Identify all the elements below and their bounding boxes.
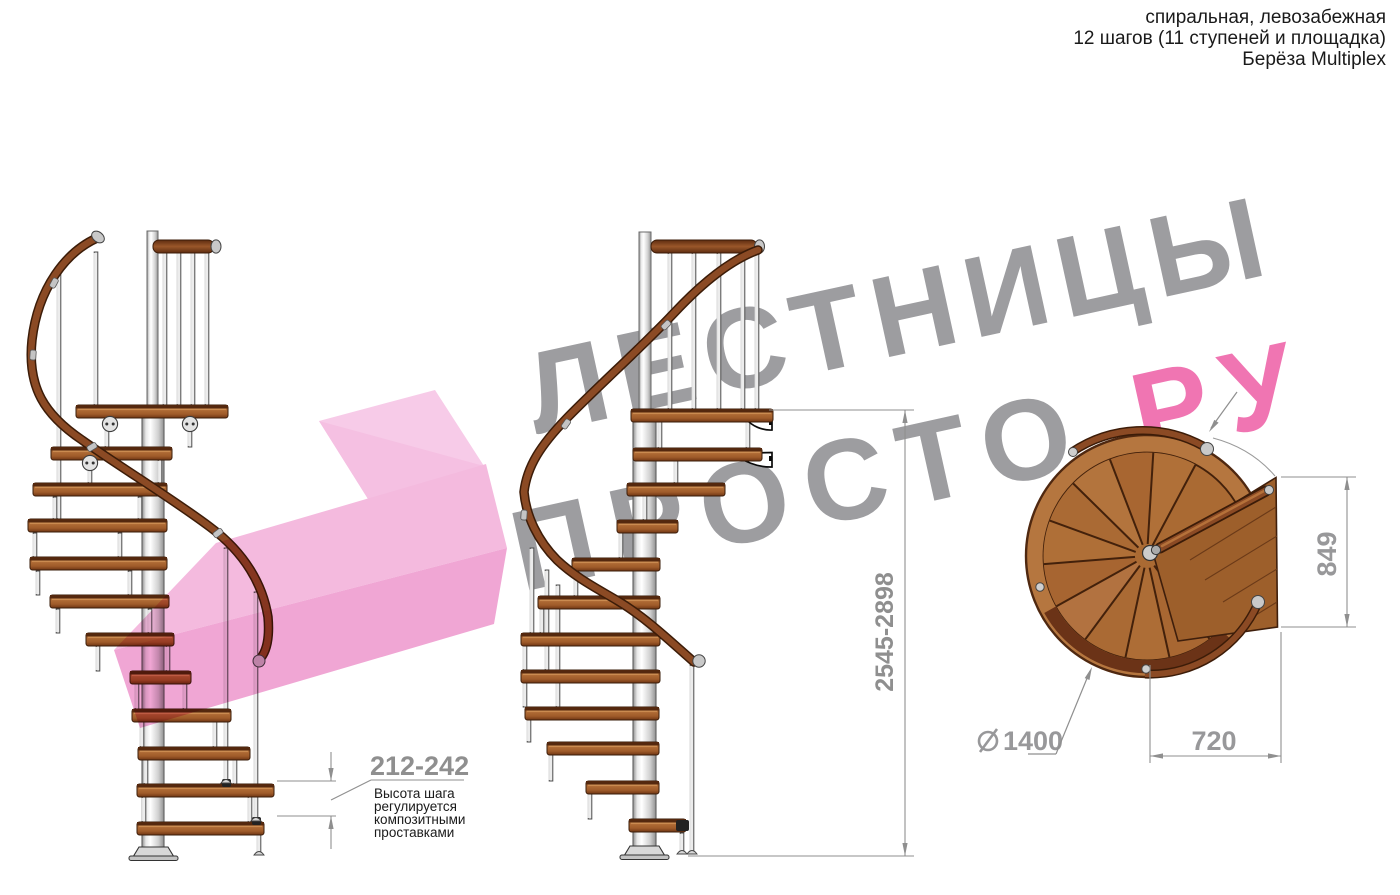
svg-text:Берёза Multiplex: Берёза Multiplex <box>1242 49 1386 70</box>
svg-text:проставками: проставками <box>374 825 454 840</box>
svg-text:1400: 1400 <box>1003 726 1063 756</box>
svg-text:12 шагов (11 ступеней и площад: 12 шагов (11 ступеней и площадка) <box>1073 28 1386 49</box>
svg-text:2545-2898: 2545-2898 <box>871 572 899 692</box>
svg-text:720: 720 <box>1191 726 1236 756</box>
svg-text:212-242: 212-242 <box>370 751 469 781</box>
svg-text:спиральная, левозабежная: спиральная, левозабежная <box>1145 7 1386 28</box>
svg-text:849: 849 <box>1312 531 1342 576</box>
